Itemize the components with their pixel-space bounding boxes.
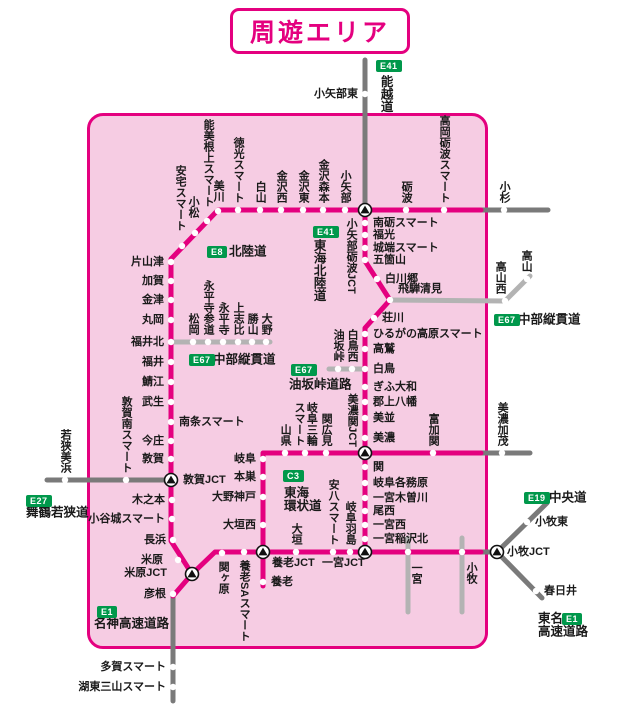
station-dot <box>170 537 176 543</box>
jct-label: 一宮JCT <box>322 557 365 569</box>
station-dot <box>362 508 368 514</box>
station-label: 上志比 <box>232 302 244 335</box>
station-dot <box>205 339 211 345</box>
station-label: 美並 <box>373 412 395 424</box>
station-dot <box>241 549 247 555</box>
route-name-label: 中央道 <box>549 491 587 504</box>
station-dot <box>524 276 530 282</box>
station-dot <box>263 339 269 345</box>
station-label: 金沢西 <box>275 170 287 203</box>
station-dot <box>362 232 368 238</box>
station-label: 湖東三山スマート <box>78 681 166 693</box>
jct-label: 小矢部砺波JCT <box>345 218 357 294</box>
station-label: 福井 <box>142 356 164 368</box>
station-label: 本巣 <box>234 471 256 483</box>
station-dot <box>62 477 68 483</box>
station-label: 砺波 <box>400 181 412 203</box>
page-title: 周遊エリア <box>230 8 410 54</box>
station-label: 松岡 <box>187 313 199 335</box>
station-label: 金沢森本 <box>317 159 329 203</box>
station-dot <box>260 579 266 585</box>
route-name-label: 高速道路 <box>538 625 588 638</box>
station-label: 高山 <box>520 250 532 272</box>
station-dot <box>362 464 368 470</box>
station-label: 片山津 <box>131 256 164 268</box>
station-label: 富加関 <box>427 413 439 446</box>
jct-label: 養老JCT <box>272 557 315 569</box>
station-dot <box>362 245 368 251</box>
station-dot <box>168 438 174 444</box>
station-dot <box>323 450 329 456</box>
route-name-label: 中部縦貫道 <box>518 313 581 326</box>
station-label: 油坂峠 <box>332 329 344 362</box>
station-dot <box>362 346 368 352</box>
station-dot <box>170 591 176 597</box>
station-label: 飛騨清見 <box>398 283 442 295</box>
route-badge-e67: E67 <box>291 364 317 376</box>
station-dot <box>168 259 174 265</box>
station-dot <box>190 339 196 345</box>
station-label: 関ヶ原 <box>217 561 229 594</box>
station-dot <box>168 419 174 425</box>
station-label: 美濃加茂 <box>496 402 508 446</box>
station-dot <box>362 536 368 542</box>
station-label: 南条スマート <box>179 416 245 428</box>
tour-area-map: 小矢部東高岡砺波スマート砺波小杉小矢部金沢森本金沢東金沢西白山徳光スマート美川能… <box>0 0 640 728</box>
station-label: 永平寺参道 <box>202 280 214 335</box>
station-label: 小谷城スマート <box>88 513 165 525</box>
station-label: 小矢部東 <box>314 88 358 100</box>
route-name-label: 能越道 <box>378 75 391 113</box>
jct-label: 美濃関JCT <box>346 393 358 447</box>
station-dot <box>169 497 175 503</box>
station-dot <box>170 664 176 670</box>
station-dot <box>533 588 539 594</box>
station-dot <box>168 297 174 303</box>
station-label: 武生 <box>142 396 164 408</box>
station-label: 関広見 <box>320 413 332 446</box>
route-name-label: 北陸道 <box>229 245 267 258</box>
station-dot <box>501 207 507 213</box>
station-label: 小牧東 <box>535 516 568 528</box>
station-label: 小杉 <box>498 181 510 203</box>
station-dot <box>362 399 368 405</box>
jct-label: 小牧JCT <box>507 546 550 558</box>
station-label: 安八スマート <box>327 479 339 545</box>
station-dot <box>335 366 341 372</box>
station-label: 福光 <box>373 229 395 241</box>
station-dot <box>371 315 377 321</box>
station-dot <box>342 207 348 213</box>
station-dot <box>362 331 368 337</box>
station-dot <box>524 519 530 525</box>
station-dot <box>374 276 380 282</box>
station-dot <box>235 339 241 345</box>
station-label: 白鳥西 <box>346 329 358 362</box>
jct-label: 一宮 <box>410 562 422 584</box>
station-dot <box>219 550 225 556</box>
station-label: 一宮木曽川 <box>373 492 428 504</box>
station-dot <box>235 207 241 213</box>
station-label: 永平寺 <box>217 302 229 335</box>
station-dot <box>260 456 266 462</box>
route-name-label: 東海 環状道 <box>284 487 322 513</box>
station-dot <box>362 522 368 528</box>
jct-label: 小牧 <box>465 562 477 584</box>
page-title-text: 周遊エリア <box>250 19 390 47</box>
station-dot <box>175 557 181 563</box>
station-label: 鯖江 <box>142 376 164 388</box>
station-label: 郡上八幡 <box>373 396 417 408</box>
station-dot <box>220 339 226 345</box>
station-label: 南砺スマート <box>373 217 439 229</box>
route-name-label: 東海北陸道 <box>311 239 324 302</box>
station-dot <box>405 549 411 555</box>
station-dot <box>278 207 284 213</box>
station-dot <box>302 450 308 456</box>
station-label: 米原 <box>141 554 163 566</box>
station-dot <box>362 220 368 226</box>
station-dot <box>293 549 299 555</box>
station-label: 岐阜各務原 <box>373 477 428 489</box>
station-label: 多賀スマート <box>100 661 166 673</box>
station-dot <box>362 384 368 390</box>
station-label: 敦賀南スマート <box>120 396 132 473</box>
route-badge-e1: E1 <box>97 606 117 618</box>
station-label: 大垣 <box>290 523 302 545</box>
station-dot <box>170 684 176 690</box>
station-label: 尾西 <box>373 505 395 517</box>
station-dot <box>192 230 198 236</box>
station-dot <box>362 91 368 97</box>
station-dot <box>260 494 266 500</box>
station-label: 岐阜三輪 スマート <box>293 402 318 446</box>
station-dot <box>260 474 266 480</box>
route-badge-e67: E67 <box>494 314 520 326</box>
station-label: 養老SAスマート <box>238 560 250 641</box>
station-label: 金沢東 <box>297 170 309 203</box>
station-label: 岐阜 <box>234 453 256 465</box>
station-dot <box>282 450 288 456</box>
station-dot <box>204 218 210 224</box>
station-label: 彦根 <box>144 588 166 600</box>
station-dot <box>347 549 353 555</box>
jct-label: 米原JCT <box>124 567 167 579</box>
route-badge-e41: E41 <box>376 60 402 72</box>
route-badge-e27: E27 <box>26 495 52 507</box>
route-name-label: 舞鶴若狭道 <box>26 506 89 519</box>
station-label: 岐阜羽島 <box>344 501 356 545</box>
station-dot <box>249 339 255 345</box>
station-label: 勝山 <box>246 313 258 335</box>
station-label: 丸岡 <box>142 314 164 326</box>
station-dot <box>168 456 174 462</box>
station-dot <box>459 549 465 555</box>
station-label: 春日井 <box>544 585 577 597</box>
station-label: 関 <box>373 461 384 473</box>
station-label: 一宮西 <box>373 519 406 531</box>
station-dot <box>362 495 368 501</box>
station-dot <box>168 339 174 345</box>
station-label: 加賀 <box>142 275 164 287</box>
route-badge-e1: E1 <box>562 613 582 625</box>
route-name-label: 中部縦貫道 <box>213 353 276 366</box>
station-label: 高鷲 <box>373 343 395 355</box>
station-label: 高岡砺波スマート <box>438 115 450 203</box>
station-dot <box>502 298 508 304</box>
station-label: 大野神戸 <box>212 491 256 503</box>
route-badge-e67: E67 <box>189 354 215 366</box>
route-name-label: 油坂峠道路 <box>289 378 352 391</box>
station-label: 徳光スマート <box>232 137 244 203</box>
station-label: 長浜 <box>144 534 166 546</box>
route-badge-e8: E8 <box>207 246 227 258</box>
station-dot <box>403 207 409 213</box>
route-badge-e19: E19 <box>524 492 550 504</box>
station-dot <box>330 549 336 555</box>
station-dot <box>499 450 505 456</box>
station-dot <box>387 297 393 303</box>
station-dot <box>168 317 174 323</box>
station-dot <box>320 207 326 213</box>
station-dot <box>257 207 263 213</box>
station-dot <box>179 243 185 249</box>
station-label: 養老 <box>271 576 293 588</box>
station-dot <box>169 516 175 522</box>
station-dot <box>362 435 368 441</box>
station-dot <box>123 477 129 483</box>
station-dot <box>362 415 368 421</box>
station-label: 小松 <box>187 196 199 218</box>
station-label: ぎふ大和 <box>373 381 417 393</box>
route-name-label: 名神高速道路 <box>94 617 169 630</box>
station-dot <box>430 450 436 456</box>
station-label: 一宮稲沢北 <box>373 533 428 545</box>
station-label: 金津 <box>142 294 164 306</box>
station-label: 安宅スマート <box>174 165 186 231</box>
station-label: 今庄 <box>142 435 164 447</box>
station-label: 山県 <box>279 424 291 446</box>
station-label: 木之本 <box>132 494 165 506</box>
station-dot <box>215 208 221 214</box>
station-label: 白山 <box>254 181 266 203</box>
route-badge-c3: C3 <box>283 470 304 482</box>
route-badge-e41: E41 <box>313 226 339 238</box>
station-dot <box>300 207 306 213</box>
station-label: 小矢部 <box>339 170 351 203</box>
station-label: 五箇山 <box>373 254 406 266</box>
station-dot <box>168 399 174 405</box>
jct-label: 敦賀JCT <box>183 474 226 486</box>
station-dot <box>260 522 266 528</box>
station-label: 荘川 <box>382 312 404 324</box>
station-label: 大垣西 <box>223 519 256 531</box>
station-dot <box>168 359 174 365</box>
station-label: 若狭美浜 <box>59 429 71 473</box>
station-label: 白鳥 <box>373 363 395 375</box>
station-dot <box>362 366 368 372</box>
station-dot <box>168 379 174 385</box>
station-dot <box>362 257 368 263</box>
station-label: 敦賀 <box>142 453 164 465</box>
station-dot <box>362 480 368 486</box>
station-label: 能美根上スマート <box>202 119 214 207</box>
station-label: 美濃 <box>373 432 395 444</box>
station-dot <box>168 278 174 284</box>
station-dot <box>441 207 447 213</box>
station-label: 大野 <box>260 313 272 335</box>
station-label: 城端スマート <box>373 242 439 254</box>
station-label: ひるがの高原スマート <box>373 328 483 340</box>
station-dot <box>349 366 355 372</box>
station-label: 福井北 <box>131 336 164 348</box>
station-label: 高山西 <box>494 261 506 294</box>
